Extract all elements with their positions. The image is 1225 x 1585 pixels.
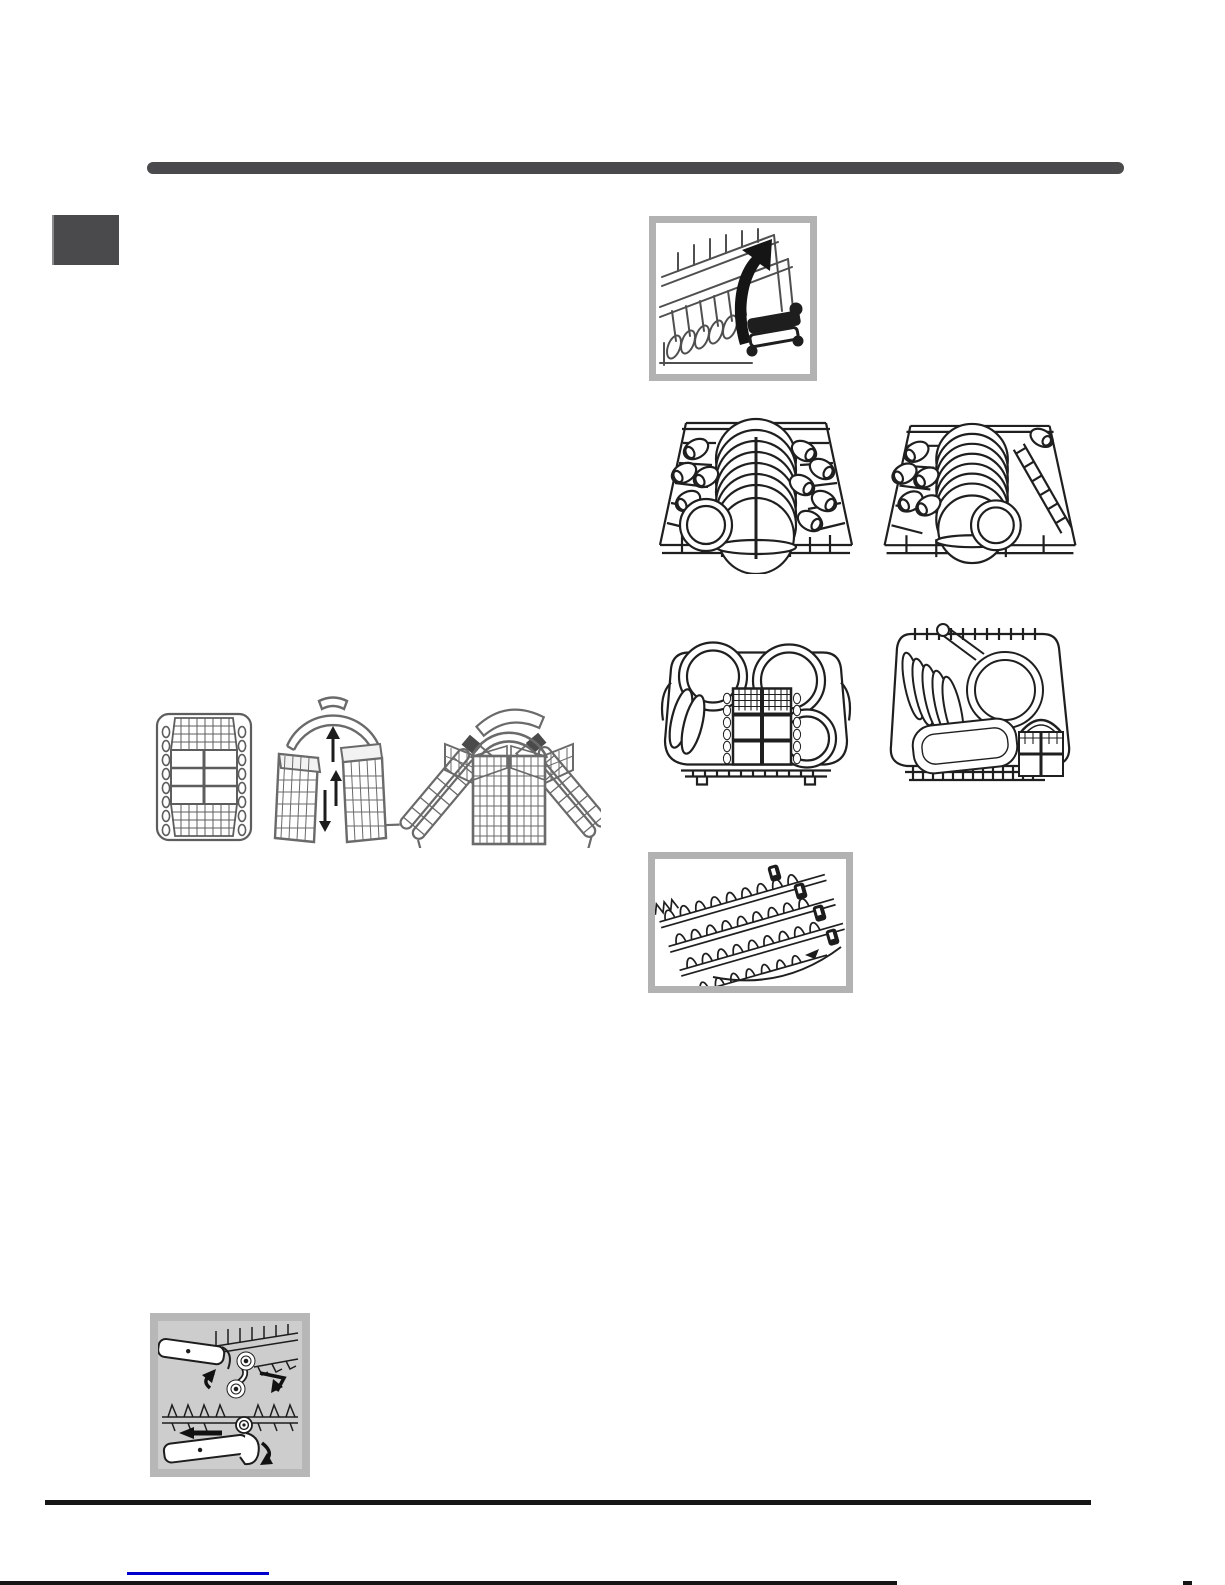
figure-lower-rack-right bbox=[881, 620, 1073, 790]
cutlery-basket-illustration bbox=[153, 688, 601, 848]
upper-rack-left-illustration bbox=[652, 407, 860, 574]
footer-rule bbox=[45, 1500, 1091, 1505]
chapter-tab-block bbox=[52, 215, 119, 265]
cutlery-basket-assembled bbox=[386, 705, 601, 848]
foldable-tines-illustration bbox=[655, 859, 846, 986]
rack-latch bbox=[747, 303, 803, 356]
figure-foldable-tines bbox=[648, 852, 853, 993]
lower-rail bbox=[163, 1417, 259, 1464]
figure-upper-rack-left bbox=[652, 407, 860, 574]
arrow-up-down-icons bbox=[319, 770, 342, 832]
manual-page bbox=[0, 0, 1225, 1585]
height-adjust-illustration bbox=[158, 1321, 302, 1469]
cutlery-basket-halves bbox=[275, 698, 386, 843]
figure-lower-rack-left bbox=[655, 622, 857, 786]
upper-rack-right-illustration bbox=[876, 412, 1084, 574]
figure-cutlery-basket-sequence bbox=[153, 688, 601, 848]
upper-rail bbox=[158, 1338, 230, 1369]
arrow-up-icon bbox=[326, 726, 340, 762]
page-bottom-edge-tick bbox=[1183, 1581, 1192, 1585]
rack-rail-illustration bbox=[656, 223, 810, 374]
cutlery-basket-top-view bbox=[157, 714, 251, 840]
footer-link-underline[interactable] bbox=[127, 1572, 269, 1575]
roller-wheels bbox=[227, 1352, 255, 1398]
figure-height-adjust bbox=[150, 1313, 310, 1477]
page-bottom-edge-bar bbox=[0, 1581, 897, 1585]
lower-rack-left-illustration bbox=[655, 622, 857, 786]
lower-rack-right-illustration bbox=[881, 620, 1073, 790]
figure-rack-rail bbox=[649, 216, 817, 381]
figure-upper-rack-right bbox=[876, 412, 1084, 574]
section-title-bar bbox=[147, 162, 1124, 174]
